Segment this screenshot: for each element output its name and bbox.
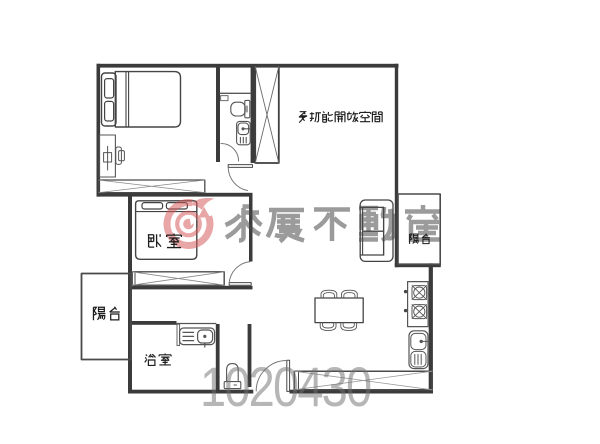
svg-text:1020430: 1020430 — [200, 355, 372, 418]
